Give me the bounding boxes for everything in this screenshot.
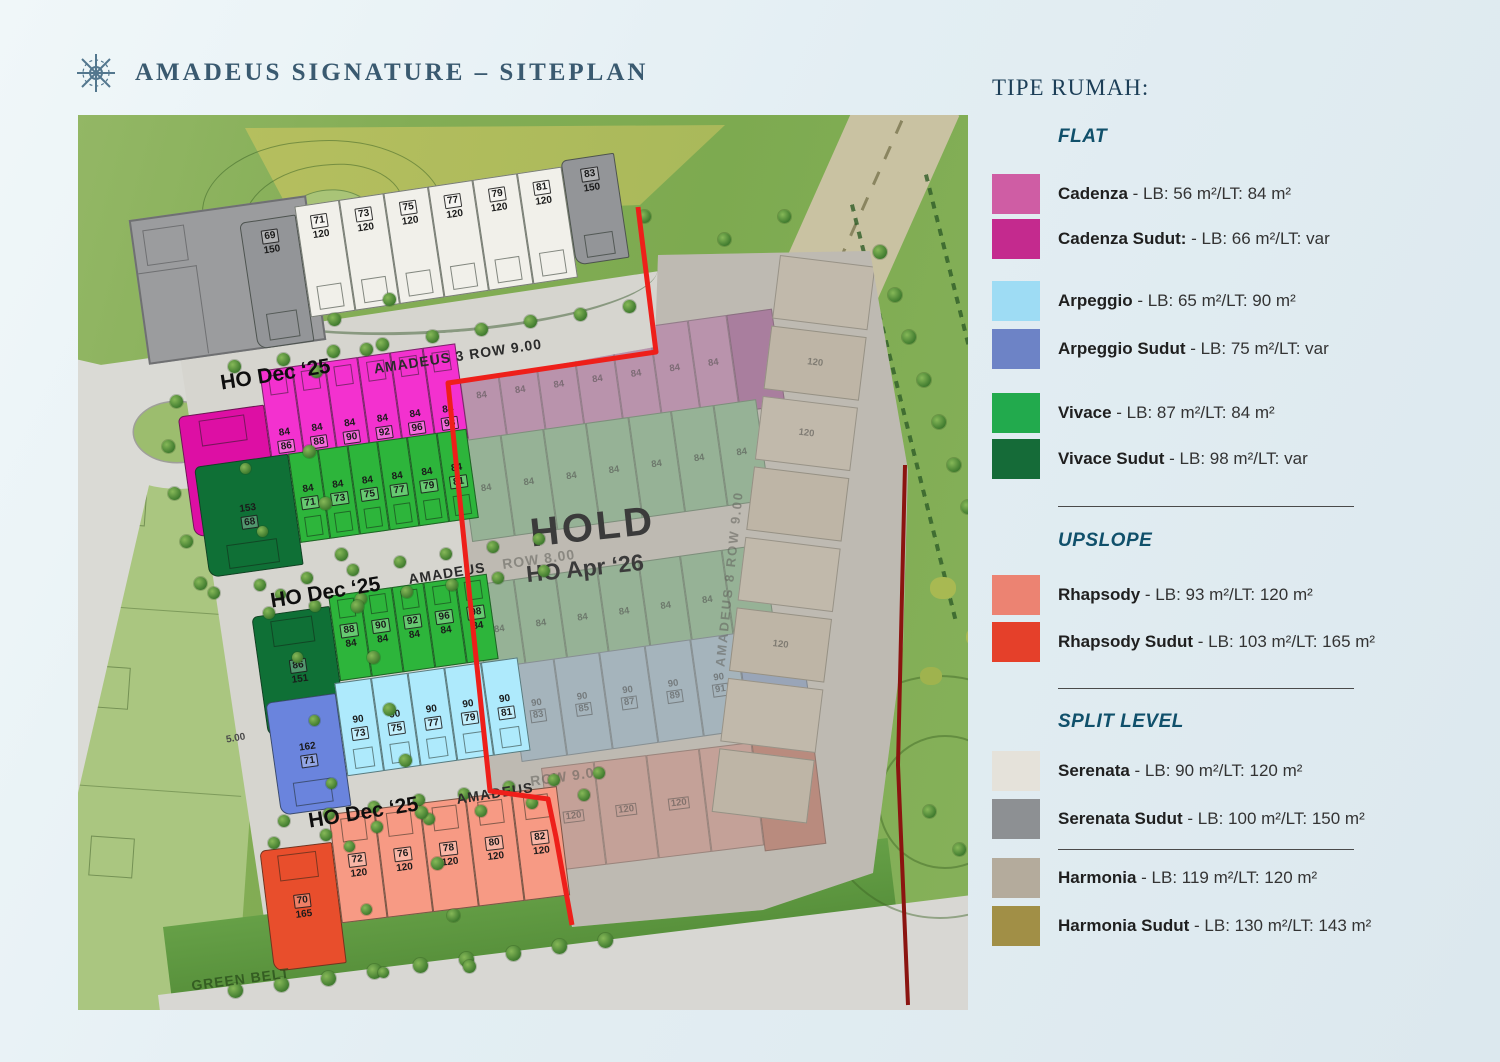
unit-number: 83: [580, 166, 599, 182]
lot-area: 84: [311, 422, 324, 435]
unit-number: 98: [467, 604, 486, 620]
unit-number: 73: [330, 490, 349, 506]
legend-item-arpeggio: Arpeggio - LB: 65 m²/LT: 90 m²: [992, 281, 1472, 321]
unit-number: 75: [360, 486, 379, 502]
unit-number: 78: [439, 841, 458, 856]
unit-number: 88: [310, 434, 329, 450]
lot-area: 84: [278, 426, 291, 439]
carport-notch: [393, 502, 412, 524]
lot-area: 84: [391, 470, 404, 483]
unit-number: 77: [424, 715, 443, 731]
legend-swatch: [992, 799, 1040, 839]
legend-item-text: Vivace - LB: 87 m²/LT: 84 m²: [1058, 403, 1275, 423]
unit-number: 86: [289, 658, 308, 674]
lot-area: 165: [295, 907, 313, 920]
unit-number: 76: [394, 846, 413, 861]
unit-number: 79: [419, 478, 438, 494]
carport-notch: [495, 255, 523, 282]
carport-notch: [450, 262, 478, 289]
unit-number: 70: [293, 893, 312, 908]
carport-notch: [364, 507, 383, 529]
unit-number: 71: [300, 753, 319, 769]
legend-item-harmonia-sudut: Harmonia Sudut - LB: 130 m²/LT: 143 m²: [992, 906, 1472, 946]
legend-swatch: [992, 439, 1040, 479]
unit-number: 98: [440, 415, 459, 431]
unit-number: 79: [461, 710, 480, 726]
lot-area: 150: [583, 181, 601, 195]
lot-area: 153: [239, 502, 257, 516]
legend-item-text: Rhapsody Sudut - LB: 103 m²/LT: 165 m²: [1058, 632, 1375, 652]
lot-area: 90: [388, 708, 401, 721]
legend-item-vivace: Vivace - LB: 87 m²/LT: 84 m²: [992, 393, 1472, 433]
carport-notch: [432, 584, 452, 605]
unit-number: 82: [531, 830, 550, 845]
carport-notch: [361, 275, 389, 302]
legend-item-text: Harmonia Sudut - LB: 130 m²/LT: 143 m²: [1058, 916, 1371, 936]
legend-section-split-level: SPLIT LEVEL: [1058, 711, 1472, 733]
legend-title: TIPE RUMAH:: [992, 75, 1472, 101]
unit-number: 86: [277, 438, 296, 454]
legend-item-cadenza: Cadenza - LB: 56 m²/LT: 84 m²: [992, 174, 1472, 214]
unit-number: 81: [497, 705, 516, 721]
unit-number: 71: [301, 495, 320, 511]
carport-notch: [584, 231, 616, 258]
carport-notch: [539, 249, 567, 276]
lot-area: 84: [376, 633, 389, 646]
legend-swatch: [992, 281, 1040, 321]
legend-swatch: [992, 219, 1040, 259]
unit-number: 80: [485, 835, 504, 850]
lot-area: 84: [361, 474, 374, 487]
lot-area: 84: [345, 637, 358, 650]
lot-area: 90: [425, 703, 438, 716]
legend-swatch: [992, 393, 1040, 433]
unit-number: 77: [390, 482, 409, 498]
lot-area: 150: [263, 243, 281, 257]
header: AMADEUS SIGNATURE – SITEPLAN: [75, 52, 648, 94]
housing-row-serenata: 6915071120731207512077120791208112083150: [238, 159, 635, 350]
lot-area: 120: [490, 201, 508, 215]
lot-area: 120: [396, 861, 414, 874]
carport-notch: [423, 498, 442, 520]
lot-area: 120: [487, 850, 505, 863]
legend-section-flat: FLAT: [1058, 126, 1472, 148]
carport-notch: [293, 778, 334, 807]
unit-number: 96: [435, 609, 454, 625]
unit-number: 90: [342, 429, 361, 445]
lot-area: 120: [535, 194, 553, 208]
carport-notch: [522, 794, 550, 820]
legend-section-upslope: UPSLOPE: [1058, 530, 1472, 552]
legend-item-text: Arpeggio - LB: 65 m²/LT: 90 m²: [1058, 291, 1296, 311]
unit-number: 92: [403, 613, 422, 629]
unit-number: 81: [532, 180, 551, 196]
carport-notch: [453, 494, 472, 516]
legend-item-arpeggio-sudut: Arpeggio Sudut - LB: 75 m²/LT: var: [992, 329, 1472, 369]
lot-area: 120: [446, 207, 464, 221]
carport-notch: [270, 615, 315, 647]
legend-item-text: Rhapsody - LB: 93 m²/LT: 120 m²: [1058, 585, 1313, 605]
carport-notch: [462, 731, 485, 754]
unit-number: 73: [354, 206, 373, 222]
unit-number: 90: [371, 618, 390, 634]
siteplan-map: 8484848484848484848484848484848484848484…: [78, 115, 968, 1010]
legend-item-text: Cadenza Sudut: - LB: 66 m²/LT: var: [1058, 229, 1330, 249]
lot-area: 84: [440, 624, 453, 637]
legend-divider: [1058, 506, 1354, 507]
unit-number: 69: [261, 228, 280, 244]
carport-notch: [463, 580, 483, 601]
lot-area: 84: [421, 466, 434, 479]
unit-number: 71: [310, 213, 329, 229]
legend-swatch: [992, 329, 1040, 369]
carport-notch: [304, 515, 323, 537]
legend-swatch: [992, 906, 1040, 946]
legend-item-harmonia: Harmonia - LB: 119 m²/LT: 120 m²: [992, 858, 1472, 898]
unit-number: 88: [340, 622, 359, 638]
legend-item-text: Vivace Sudut - LB: 98 m²/LT: var: [1058, 449, 1308, 469]
legend-item-serenata-sudut: Serenata Sudut - LB: 100 m²/LT: 150 m²: [992, 799, 1472, 839]
lot-area: 120: [533, 844, 551, 857]
carport-notch: [334, 511, 353, 533]
lot-area: 90: [498, 693, 511, 706]
carport-notch: [406, 269, 434, 296]
carport-notch: [266, 309, 300, 340]
lot-area: 84: [408, 628, 421, 641]
carport-notch: [431, 805, 459, 831]
legend-swatch: [992, 622, 1040, 662]
legend-item-text: Harmonia - LB: 119 m²/LT: 120 m²: [1058, 868, 1317, 888]
carport-notch: [426, 736, 449, 759]
unit-number: 79: [488, 186, 507, 202]
unit-number: 75: [399, 200, 418, 216]
lot-area: 120: [441, 855, 459, 868]
lot-area: 120: [357, 221, 375, 235]
lot-area: 120: [312, 227, 330, 241]
carport-notch: [400, 589, 420, 610]
ornament-flower-icon: [75, 52, 117, 94]
unit-number: 73: [351, 725, 370, 741]
lot-area: 120: [350, 866, 368, 879]
legend-item-serenata: Serenata - LB: 90 m²/LT: 120 m²: [992, 751, 1472, 791]
carport-notch: [317, 282, 345, 309]
carport-notch: [227, 538, 280, 569]
carport-notch: [389, 741, 412, 764]
carport-notch: [198, 414, 247, 446]
legend-item-text: Cadenza - LB: 56 m²/LT: 84 m²: [1058, 184, 1291, 204]
unit-number: 72: [348, 852, 367, 867]
lot-area: 90: [462, 698, 475, 711]
lot-area: 162: [298, 740, 316, 754]
unit-number: 96: [408, 420, 427, 436]
lot-area: 84: [442, 403, 455, 416]
lot-corner-unit: 15368: [194, 454, 304, 578]
carport-notch: [352, 746, 375, 769]
lot-area: 151: [291, 672, 309, 686]
legend-item-text: Serenata Sudut - LB: 100 m²/LT: 150 m²: [1058, 809, 1365, 829]
lot-area: 84: [344, 417, 357, 430]
legend-divider: [1058, 849, 1354, 850]
legend-item-cadenza-sudut: Cadenza Sudut: - LB: 66 m²/LT: var: [992, 219, 1472, 259]
lot-area: 84: [302, 483, 315, 496]
legend-swatch: [992, 858, 1040, 898]
legend-divider: [1058, 688, 1354, 689]
unit-number: 68: [240, 514, 259, 530]
legend-item-rhapsody-sudut: Rhapsody Sudut - LB: 103 m²/LT: 165 m²: [992, 622, 1472, 662]
carport-notch: [499, 726, 522, 749]
legend-swatch: [992, 575, 1040, 615]
legend-swatch: [992, 174, 1040, 214]
carport-notch: [333, 364, 354, 387]
legend-item-vivace-sudut: Vivace Sudut - LB: 98 m²/LT: var: [992, 439, 1472, 479]
lot-area: 84: [450, 462, 463, 475]
lot-area: 120: [401, 214, 419, 228]
legend-item-text: Arpeggio Sudut - LB: 75 m²/LT: var: [1058, 339, 1329, 359]
unit-number: 92: [375, 424, 394, 440]
lot-area: 84: [376, 412, 389, 425]
lot-area: 84: [409, 408, 422, 421]
legend-item-rhapsody: Rhapsody - LB: 93 m²/LT: 120 m²: [992, 575, 1472, 615]
carport-notch: [277, 851, 319, 882]
legend-swatch: [992, 751, 1040, 791]
lot-area: 84: [332, 478, 345, 491]
page-title: AMADEUS SIGNATURE – SITEPLAN: [135, 59, 648, 87]
unit-number: 77: [443, 193, 462, 209]
legend-panel: TIPE RUMAH: FLATCadenza - LB: 56 m²/LT: …: [992, 75, 1472, 946]
legend-item-text: Serenata - LB: 90 m²/LT: 120 m²: [1058, 761, 1302, 781]
lot-area: 84: [472, 619, 485, 632]
unit-number: 75: [387, 720, 406, 736]
unit-number: 81: [449, 474, 468, 490]
lot-area: 90: [352, 713, 365, 726]
